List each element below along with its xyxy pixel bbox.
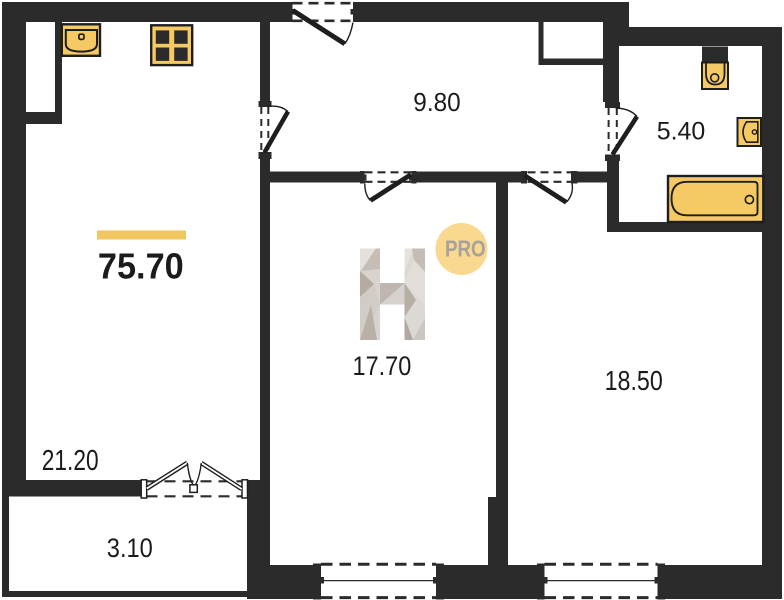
svg-text:18.50: 18.50 <box>605 366 663 396</box>
svg-text:9.80: 9.80 <box>413 88 460 117</box>
svg-text:3.10: 3.10 <box>107 533 153 563</box>
svg-text:17.70: 17.70 <box>353 352 412 382</box>
svg-text:5.40: 5.40 <box>657 117 706 145</box>
svg-text:21.20: 21.20 <box>42 446 99 477</box>
svg-text:PRO: PRO <box>445 235 486 262</box>
svg-text:75.70: 75.70 <box>98 247 184 287</box>
